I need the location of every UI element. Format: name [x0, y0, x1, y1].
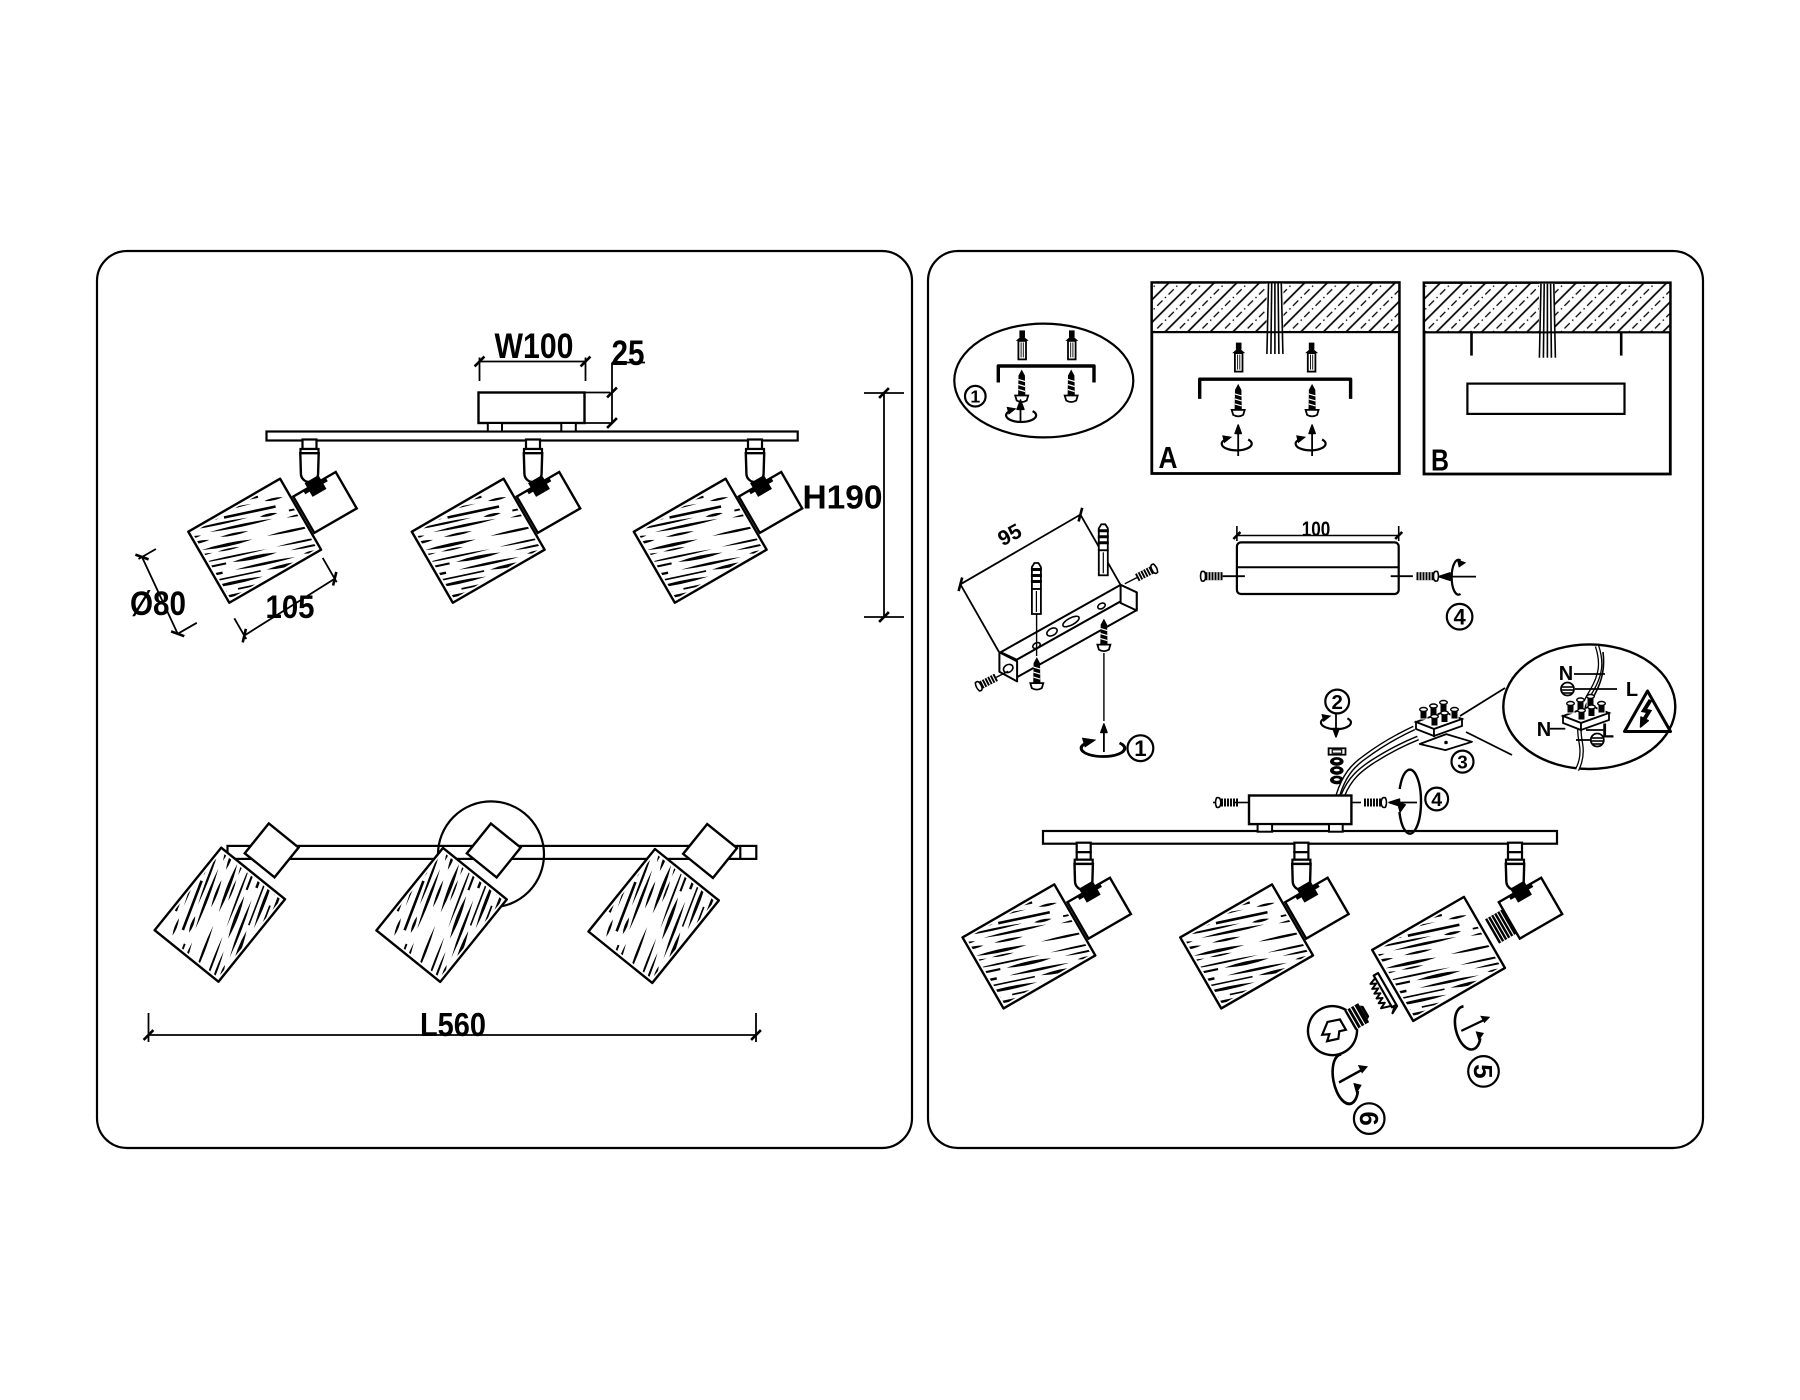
svg-text:2: 2 — [1332, 691, 1343, 714]
svg-text:4: 4 — [1453, 605, 1466, 630]
svg-text:25: 25 — [612, 333, 645, 373]
svg-text:3: 3 — [1457, 752, 1468, 773]
svg-text:1: 1 — [1134, 736, 1146, 761]
svg-text:6: 6 — [1354, 1111, 1384, 1125]
svg-text:L: L — [1626, 679, 1638, 701]
svg-text:5: 5 — [1468, 1064, 1498, 1078]
svg-text:N: N — [1559, 663, 1573, 685]
svg-text:W100: W100 — [495, 326, 574, 366]
svg-text:H190: H190 — [803, 479, 883, 516]
svg-text:Ø80: Ø80 — [130, 585, 186, 623]
svg-text:1: 1 — [970, 387, 980, 407]
svg-text:N: N — [1537, 719, 1551, 741]
svg-text:L560: L560 — [420, 1006, 486, 1043]
svg-text:4: 4 — [1431, 789, 1442, 811]
svg-text:B: B — [1431, 443, 1449, 478]
svg-text:A: A — [1159, 441, 1178, 475]
svg-text:105: 105 — [266, 589, 315, 625]
svg-text:100: 100 — [1302, 518, 1331, 541]
